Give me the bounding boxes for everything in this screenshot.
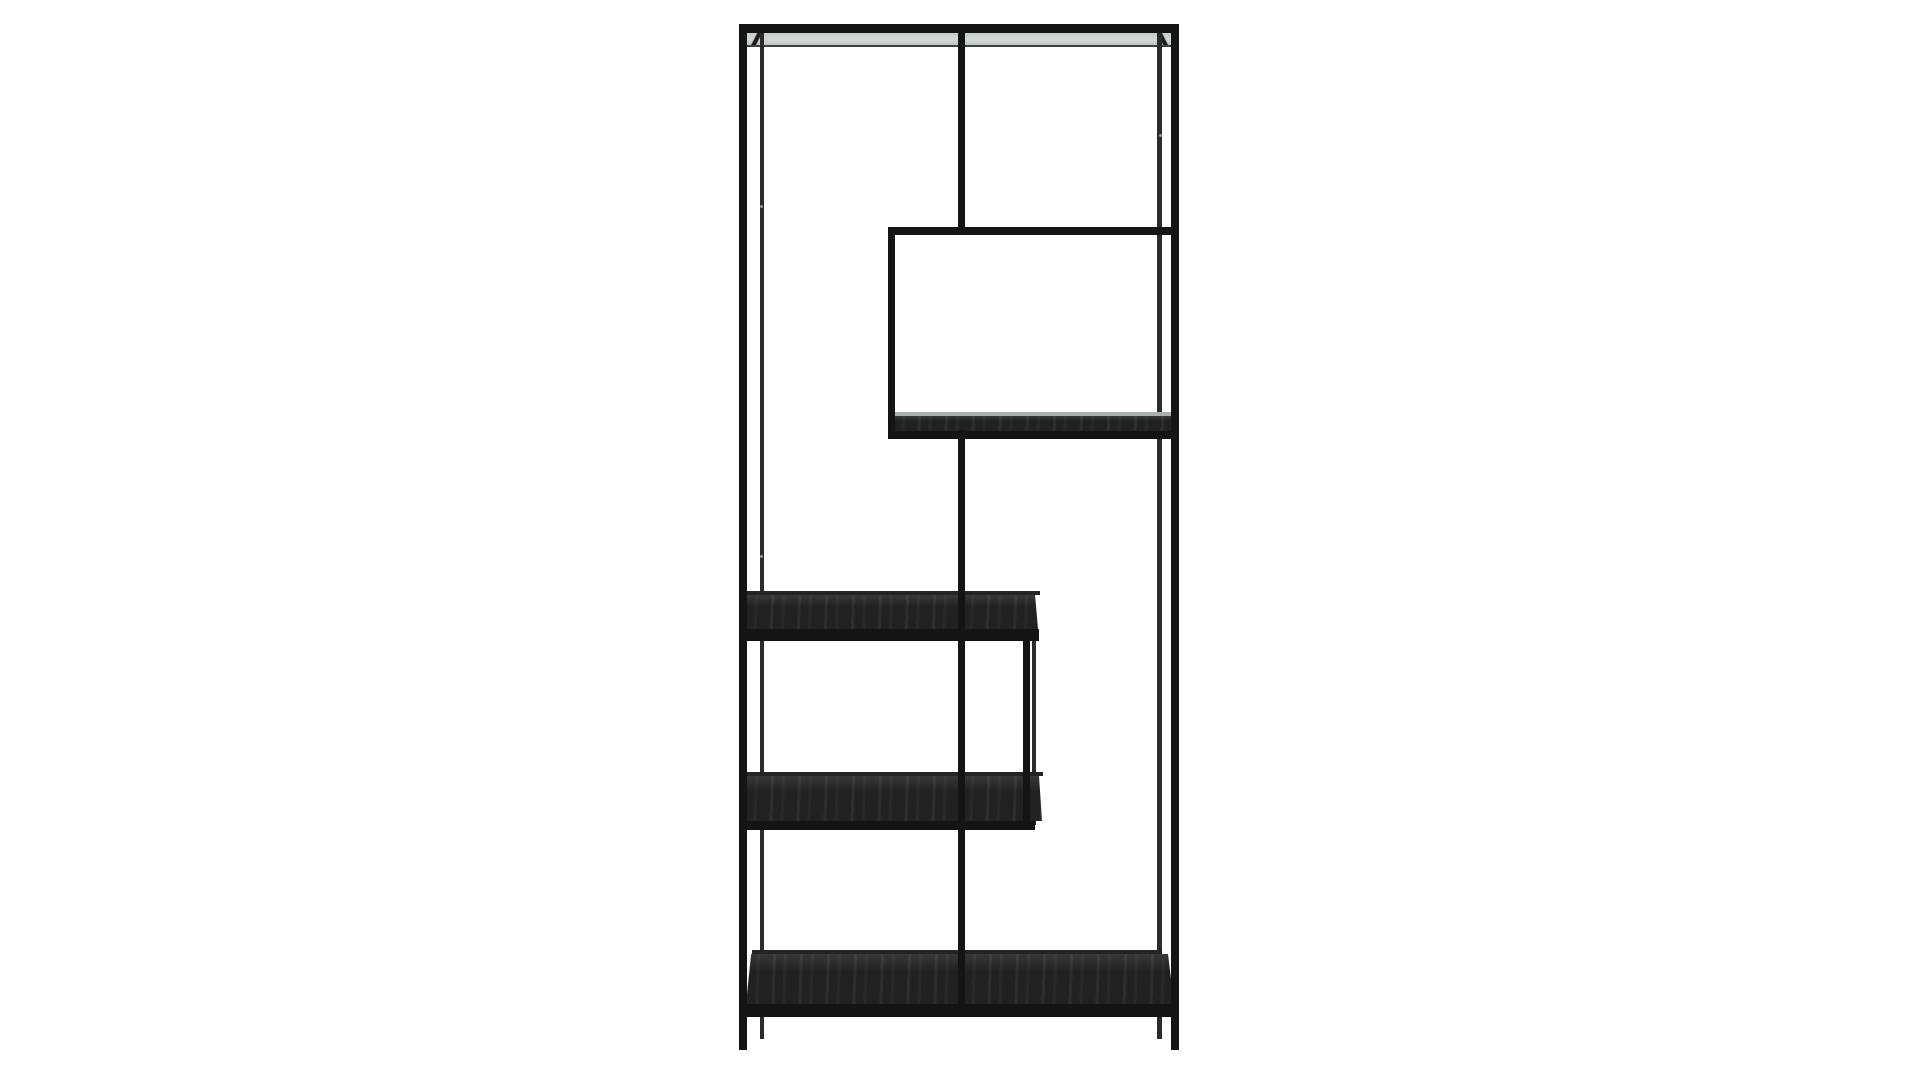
lower-shelf-panel <box>744 776 1042 821</box>
bottom-shelf-back-bar <box>752 950 1162 954</box>
screw-dot-right-upper <box>1159 134 1162 137</box>
left-back-post <box>760 33 764 1039</box>
right-front-post <box>1171 24 1179 1050</box>
top-right-rail-wedge <box>1153 33 1171 45</box>
screw-dot-left-upper <box>760 205 763 208</box>
shelf-unit-photo <box>739 24 1179 1052</box>
box-top-bar <box>888 227 1179 235</box>
middle-shelf-front-bar <box>741 629 1039 641</box>
lower-shelf-front-bar <box>741 821 1035 830</box>
box-left-upright <box>888 227 895 437</box>
middle-shelf-panel <box>744 595 1038 629</box>
center-spine-upper <box>958 31 965 235</box>
screw-dot-left-middle <box>760 555 763 558</box>
middle-shelf-back-bar <box>746 591 1040 595</box>
left-front-post <box>739 24 747 1050</box>
center-spine-lower <box>958 430 965 1017</box>
lower-right-upright <box>1023 629 1030 829</box>
right-back-post <box>1157 33 1162 1039</box>
box-shelf-panel <box>891 416 1175 431</box>
box-front-bar <box>888 431 1179 439</box>
lower-shelf-back-bar <box>747 772 1043 776</box>
